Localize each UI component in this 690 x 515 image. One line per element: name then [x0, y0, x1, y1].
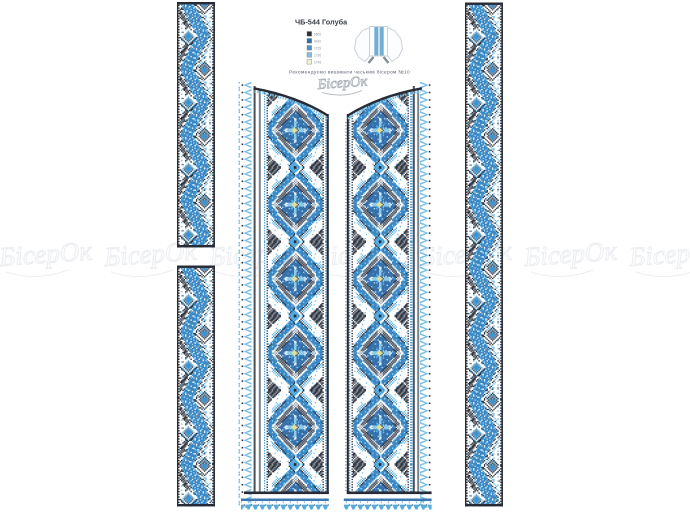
svg-text:БісерОк: БісерОк [627, 236, 690, 272]
svg-text:ЧБ-544 Голуба: ЧБ-544 Голуба [295, 18, 348, 27]
svg-text:1745: 1745 [314, 61, 321, 65]
svg-text:6500: 6500 [314, 33, 321, 37]
svg-text:9430: 9430 [314, 40, 321, 44]
svg-text:1730: 1730 [314, 54, 321, 58]
svg-text:1729: 1729 [314, 47, 321, 51]
